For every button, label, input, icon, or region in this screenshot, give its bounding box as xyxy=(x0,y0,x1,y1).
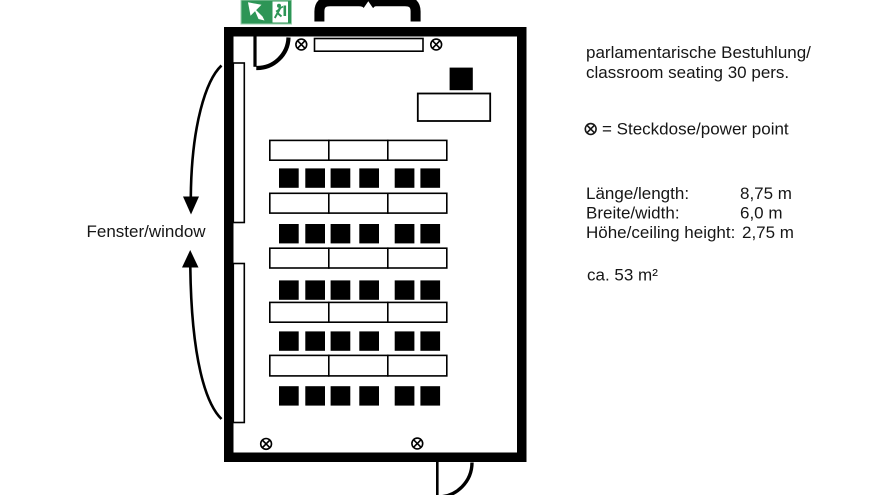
svg-text:2,75 m: 2,75 m xyxy=(742,223,794,242)
svg-text:6,0 m: 6,0 m xyxy=(740,204,783,223)
svg-text:8,75 m: 8,75 m xyxy=(740,184,792,203)
svg-text:Länge/length:: Länge/length: xyxy=(586,184,689,203)
svg-text:ca. 53 m²: ca. 53 m² xyxy=(587,266,658,285)
svg-text:classroom seating 30 pers.: classroom seating 30 pers. xyxy=(586,63,789,82)
svg-text:Fenster/window: Fenster/window xyxy=(87,222,207,241)
svg-text:Höhe/ceiling height:: Höhe/ceiling height: xyxy=(586,223,735,242)
svg-text:Breite/width:: Breite/width: xyxy=(586,204,680,223)
svg-text:= Steckdose/power point: = Steckdose/power point xyxy=(602,120,789,139)
svg-text:parlamentarische Bestuhlung/: parlamentarische Bestuhlung/ xyxy=(586,43,811,62)
